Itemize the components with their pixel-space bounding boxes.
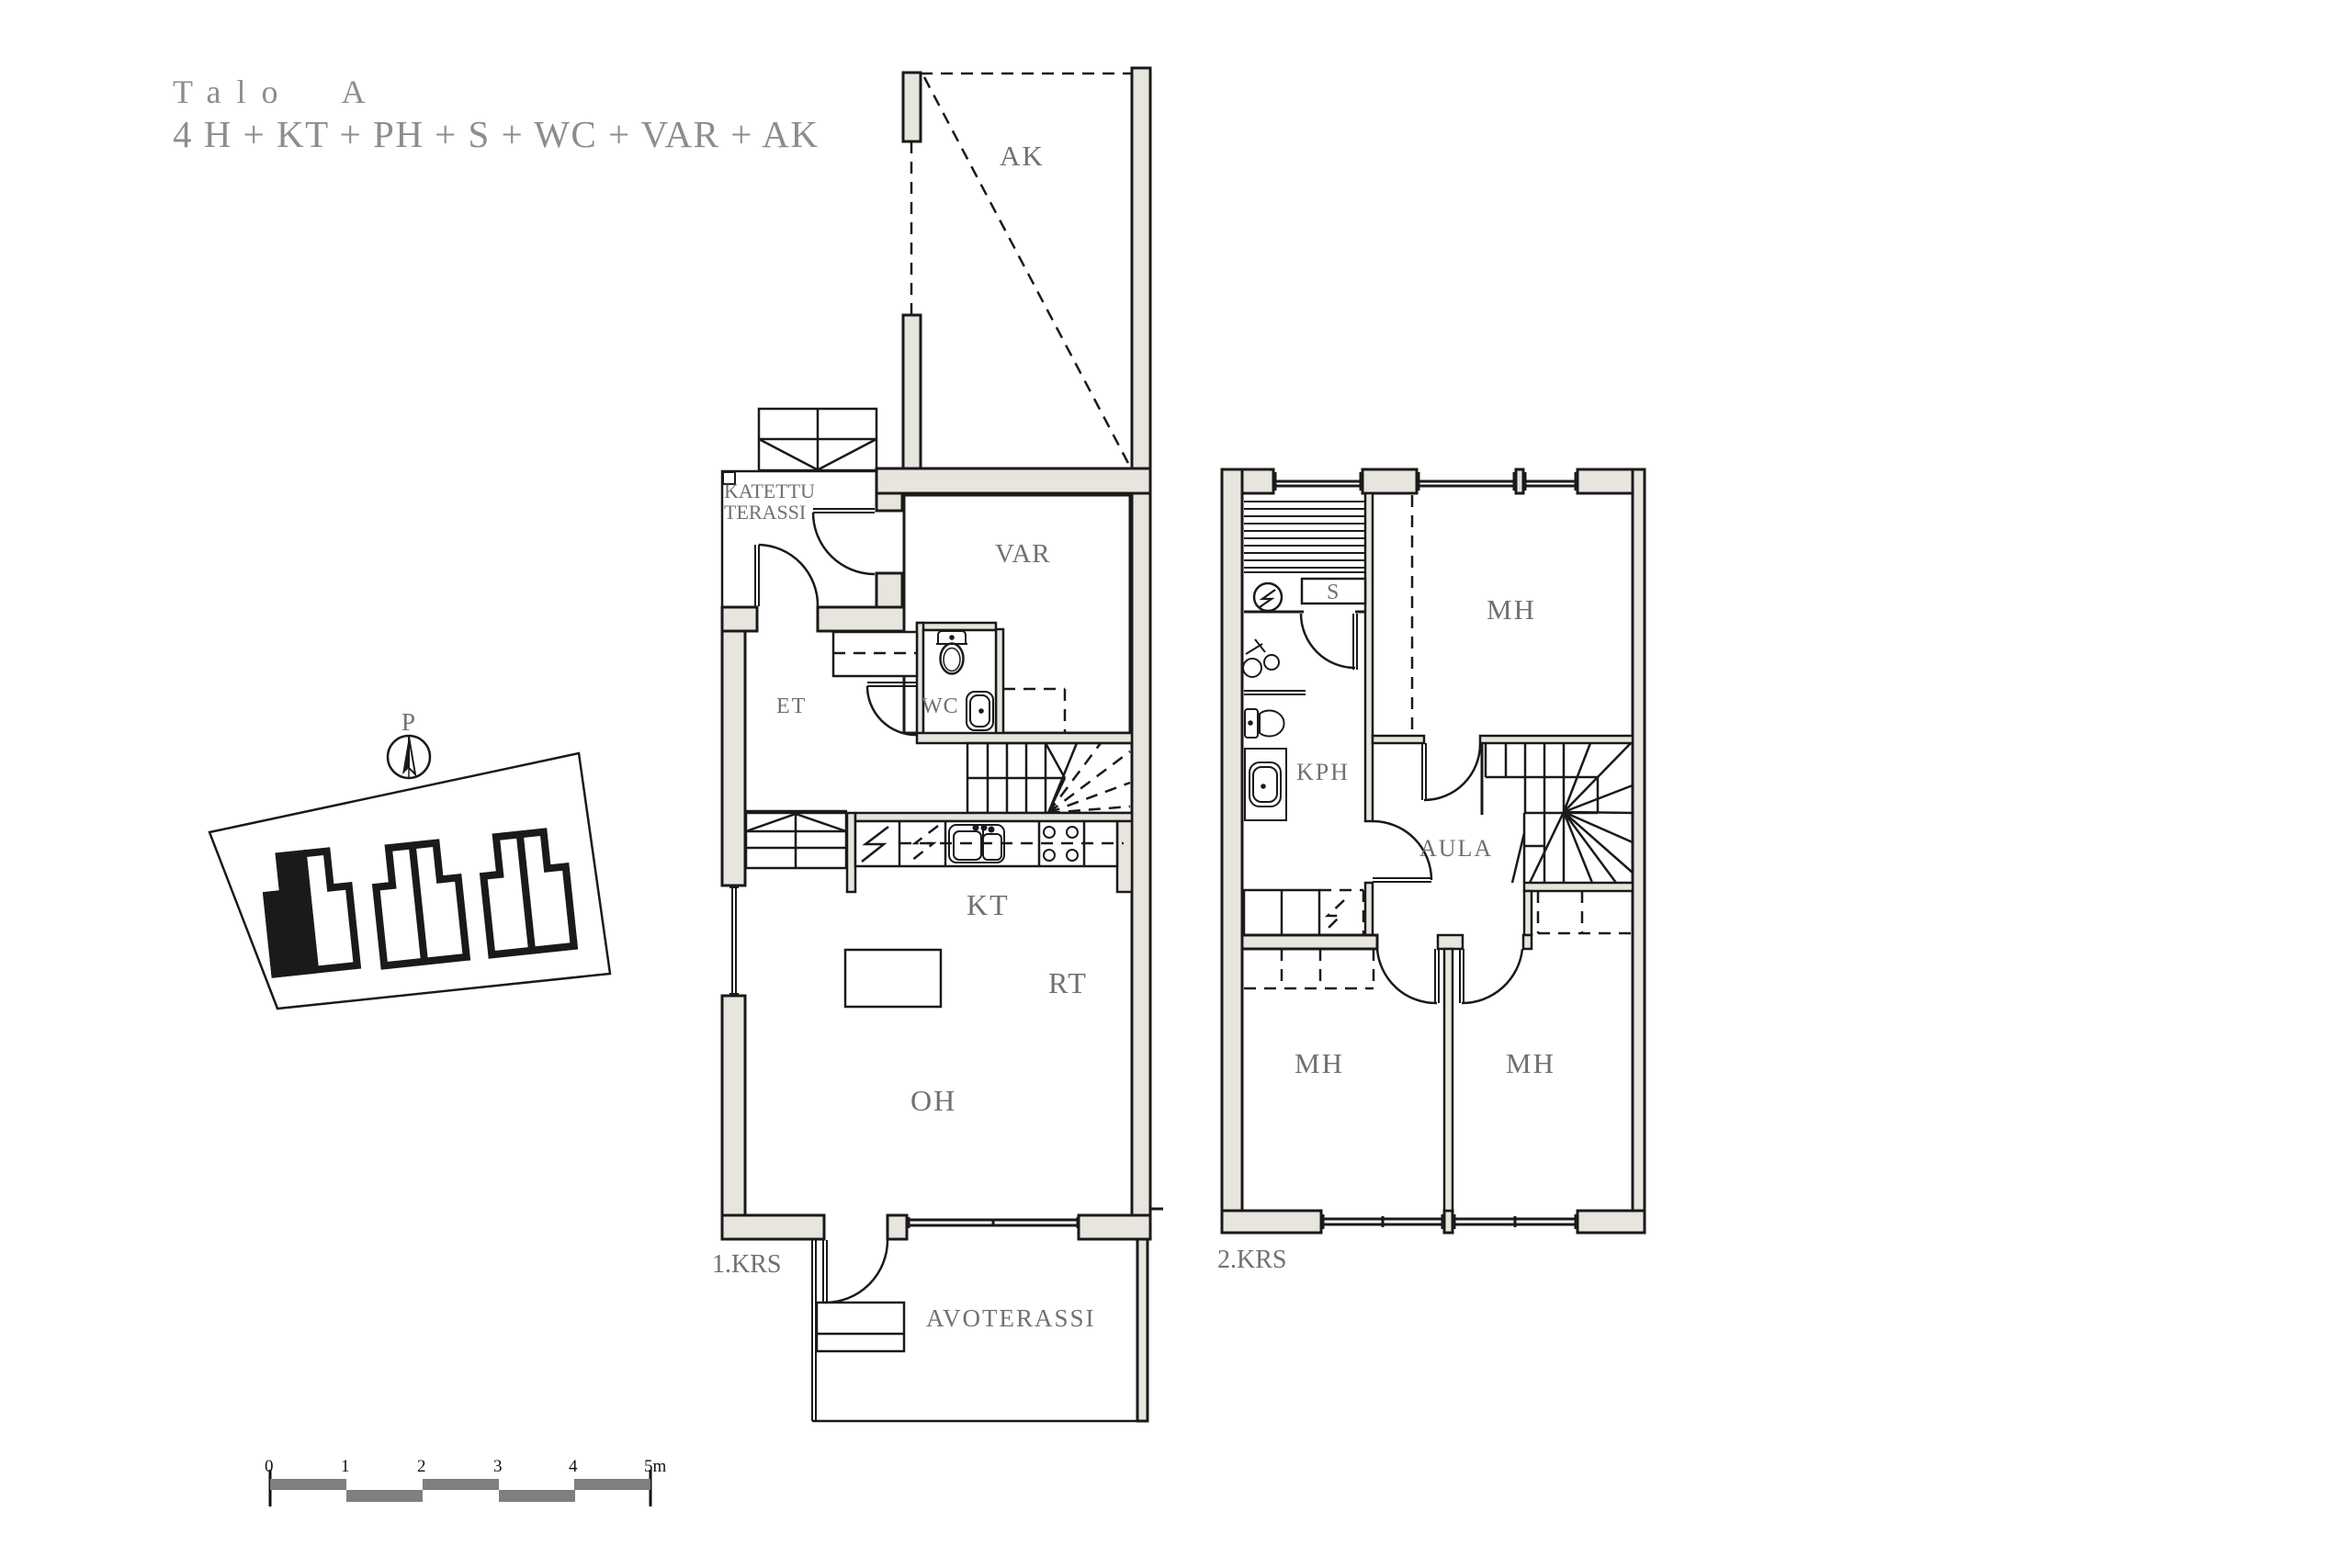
svg-text:MH: MH xyxy=(1487,593,1536,626)
svg-text:5m: 5m xyxy=(644,1457,667,1476)
svg-text:1.KRS: 1.KRS xyxy=(712,1250,781,1279)
svg-text:MH: MH xyxy=(1506,1047,1555,1079)
svg-text:TERASSI: TERASSI xyxy=(724,501,806,524)
svg-text:AULA: AULA xyxy=(1419,835,1493,862)
svg-text:4 H + KT + PH + S + WC + VAR +: 4 H + KT + PH + S + WC + VAR + AK xyxy=(173,113,820,155)
svg-text:MH: MH xyxy=(1295,1047,1344,1079)
svg-text:S: S xyxy=(1327,581,1339,604)
svg-text:2: 2 xyxy=(417,1457,426,1476)
svg-text:WC: WC xyxy=(922,694,959,718)
svg-text:3: 3 xyxy=(493,1457,503,1476)
svg-text:KPH: KPH xyxy=(1296,759,1350,785)
svg-text:OH: OH xyxy=(910,1084,956,1117)
svg-text:RT: RT xyxy=(1048,966,1088,999)
svg-text:1: 1 xyxy=(341,1457,350,1476)
svg-text:Talo A: Talo A xyxy=(173,73,380,110)
svg-text:VAR: VAR xyxy=(995,539,1051,569)
svg-text:2.KRS: 2.KRS xyxy=(1217,1246,1286,1274)
svg-text:P: P xyxy=(401,708,415,736)
svg-text:KATETTU: KATETTU xyxy=(724,479,815,502)
svg-text:KT: KT xyxy=(967,888,1010,921)
svg-text:AK: AK xyxy=(1000,140,1045,172)
svg-text:0: 0 xyxy=(265,1457,274,1476)
svg-text:AVOTERASSI: AVOTERASSI xyxy=(926,1304,1096,1332)
svg-text:ET: ET xyxy=(776,694,807,718)
svg-text:4: 4 xyxy=(569,1457,578,1476)
